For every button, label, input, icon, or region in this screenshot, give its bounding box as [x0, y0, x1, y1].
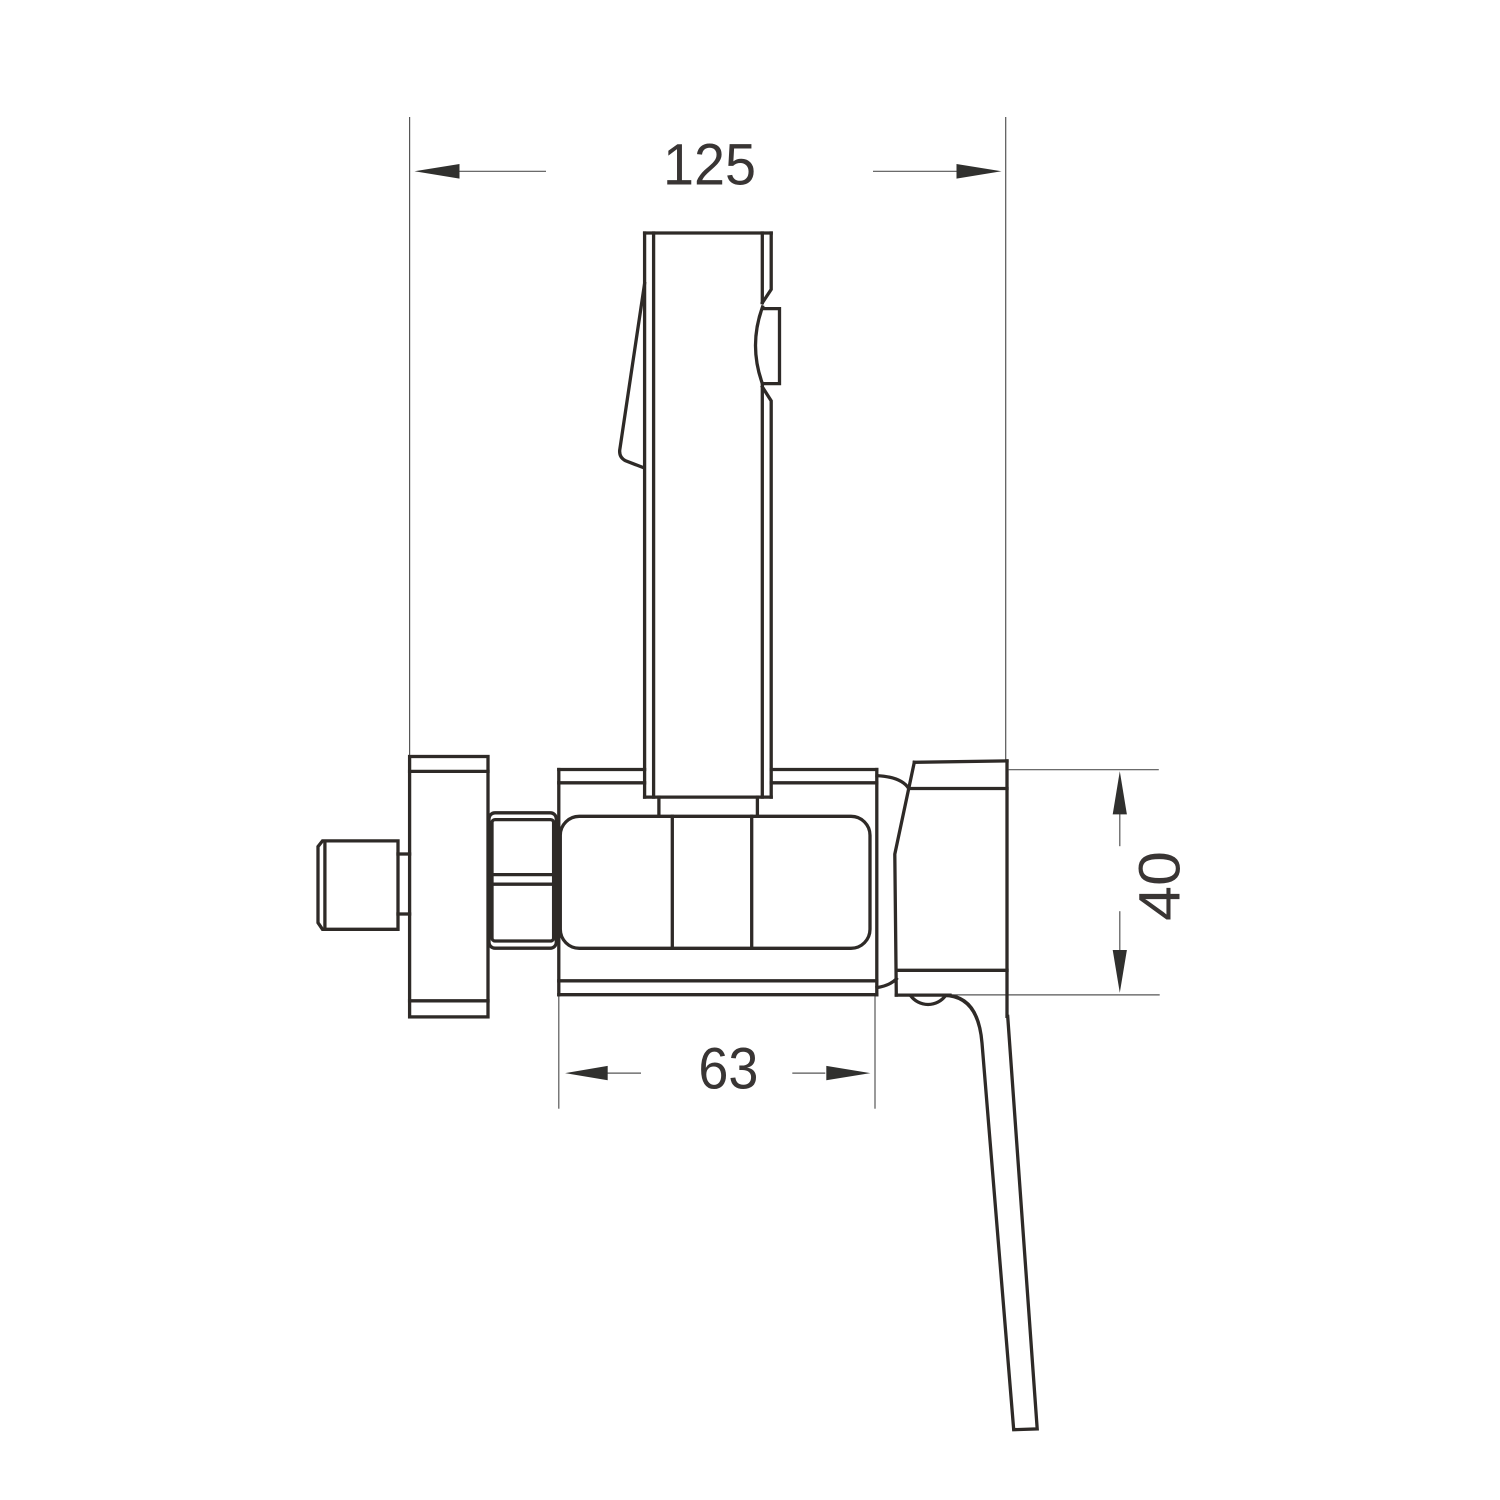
svg-text:125: 125	[663, 133, 756, 198]
svg-text:63: 63	[698, 1037, 758, 1102]
svg-text:40: 40	[1128, 851, 1193, 921]
